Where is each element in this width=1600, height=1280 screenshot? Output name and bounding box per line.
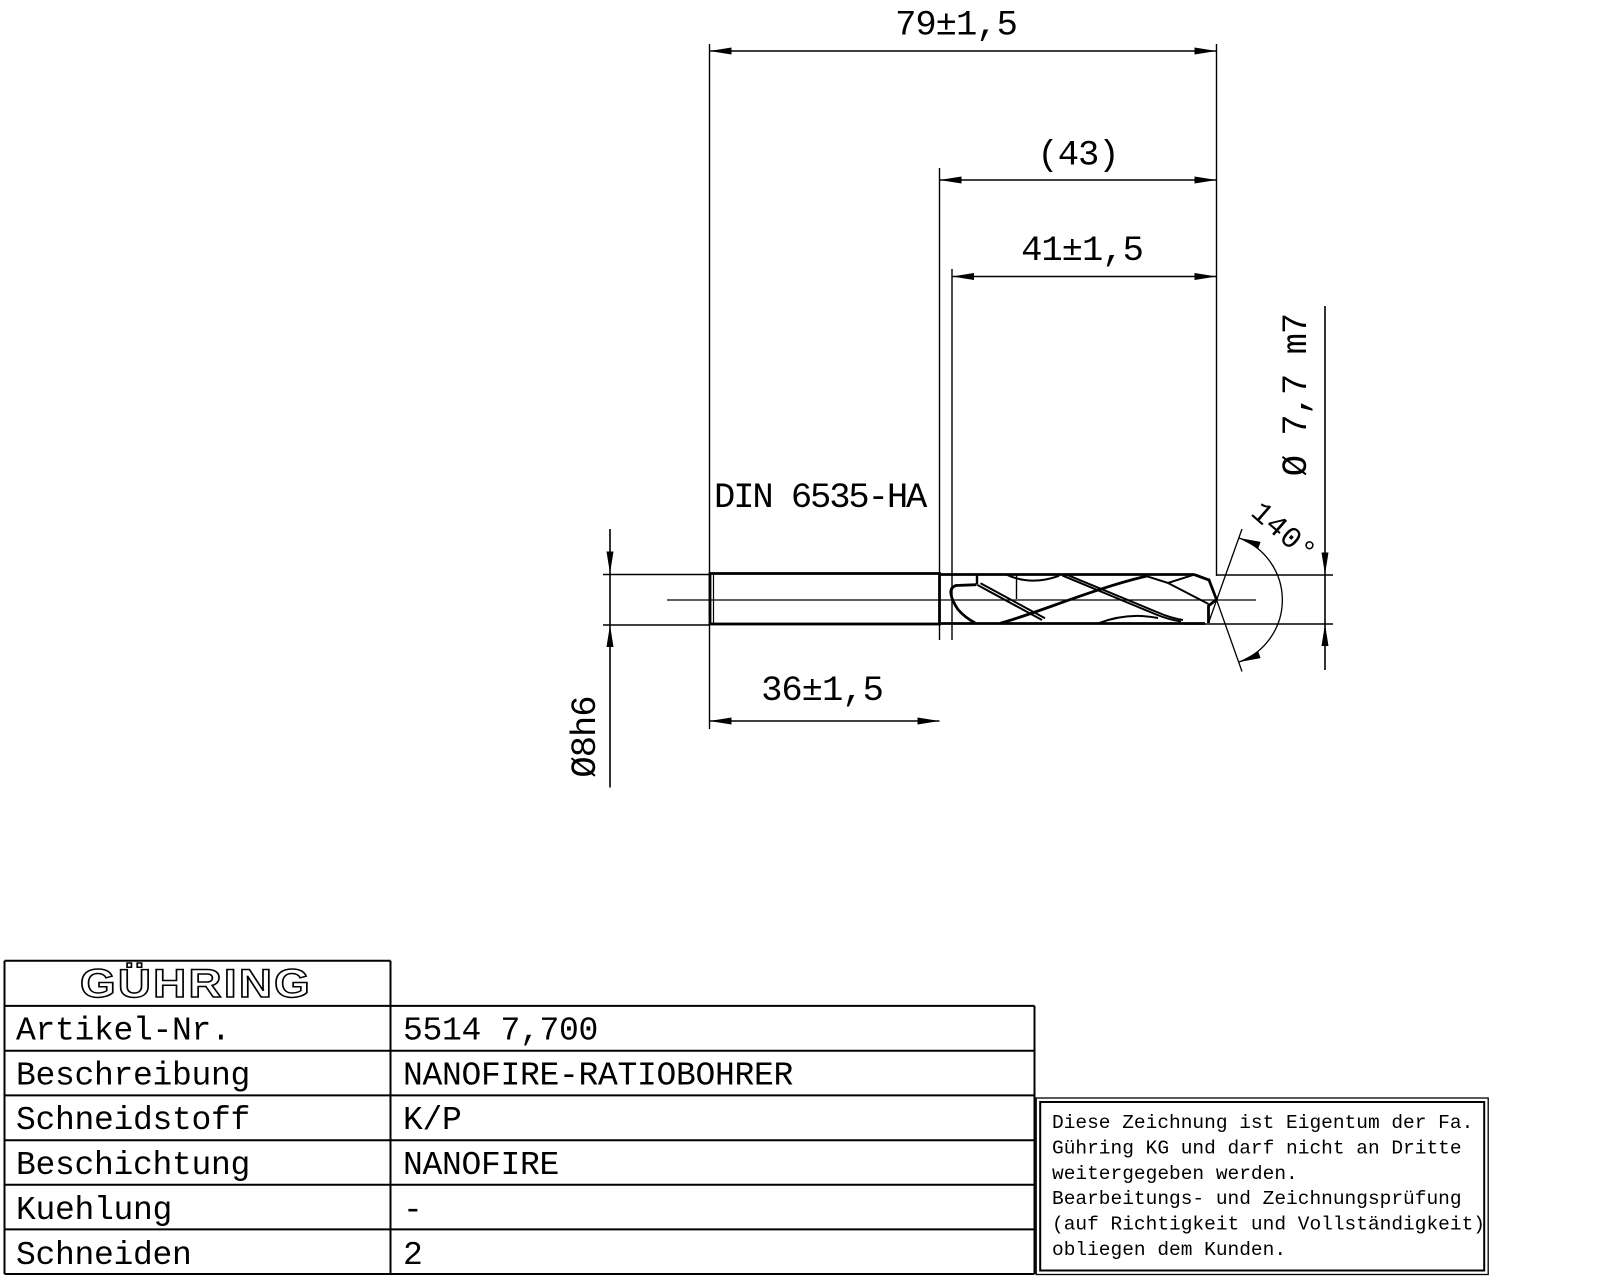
svg-text:NANOFIRE: NANOFIRE [403,1147,559,1184]
svg-text:(43): (43) [1037,135,1118,176]
svg-text:Gühring KG und darf nicht an D: Gühring KG und darf nicht an Dritte [1052,1137,1462,1159]
svg-text:K/P: K/P [403,1102,462,1139]
svg-text:Beschichtung: Beschichtung [16,1147,250,1184]
svg-text:Kuehlung: Kuehlung [16,1192,172,1229]
svg-text:(auf Richtigkeit und Vollständ: (auf Richtigkeit und Vollständigkeit) [1052,1214,1485,1236]
svg-text:Diese Zeichnung ist Eigentum d: Diese Zeichnung ist Eigentum der Fa. [1052,1112,1473,1134]
svg-text:Schneiden: Schneiden [16,1237,192,1274]
svg-text:weitergegeben werden.: weitergegeben werden. [1052,1163,1298,1185]
svg-text:Artikel-Nr.: Artikel-Nr. [16,1013,231,1050]
svg-text:GÜHRING: GÜHRING [80,961,312,1006]
svg-text:Ø 7,7 m7: Ø 7,7 m7 [1276,314,1317,476]
svg-text:Beschreibung: Beschreibung [16,1057,250,1094]
svg-text:5514 7,700: 5514 7,700 [403,1013,598,1050]
svg-text:41±1,5: 41±1,5 [1021,230,1143,271]
svg-text:obliegen dem Kunden.: obliegen dem Kunden. [1052,1239,1286,1261]
svg-text:Schneidstoff: Schneidstoff [16,1102,250,1139]
svg-text:36±1,5: 36±1,5 [761,670,883,711]
svg-text:Ø8h6: Ø8h6 [565,696,606,777]
svg-text:DIN 6535-HA: DIN 6535-HA [714,477,928,518]
svg-text:NANOFIRE-RATIOBOHRER: NANOFIRE-RATIOBOHRER [403,1057,793,1094]
svg-text:79±1,5: 79±1,5 [895,5,1017,46]
svg-text:2: 2 [403,1237,423,1274]
svg-text:-: - [403,1192,423,1229]
svg-text:Bearbeitungs- und Zeichnungspr: Bearbeitungs- und Zeichnungsprüfung [1052,1188,1462,1210]
